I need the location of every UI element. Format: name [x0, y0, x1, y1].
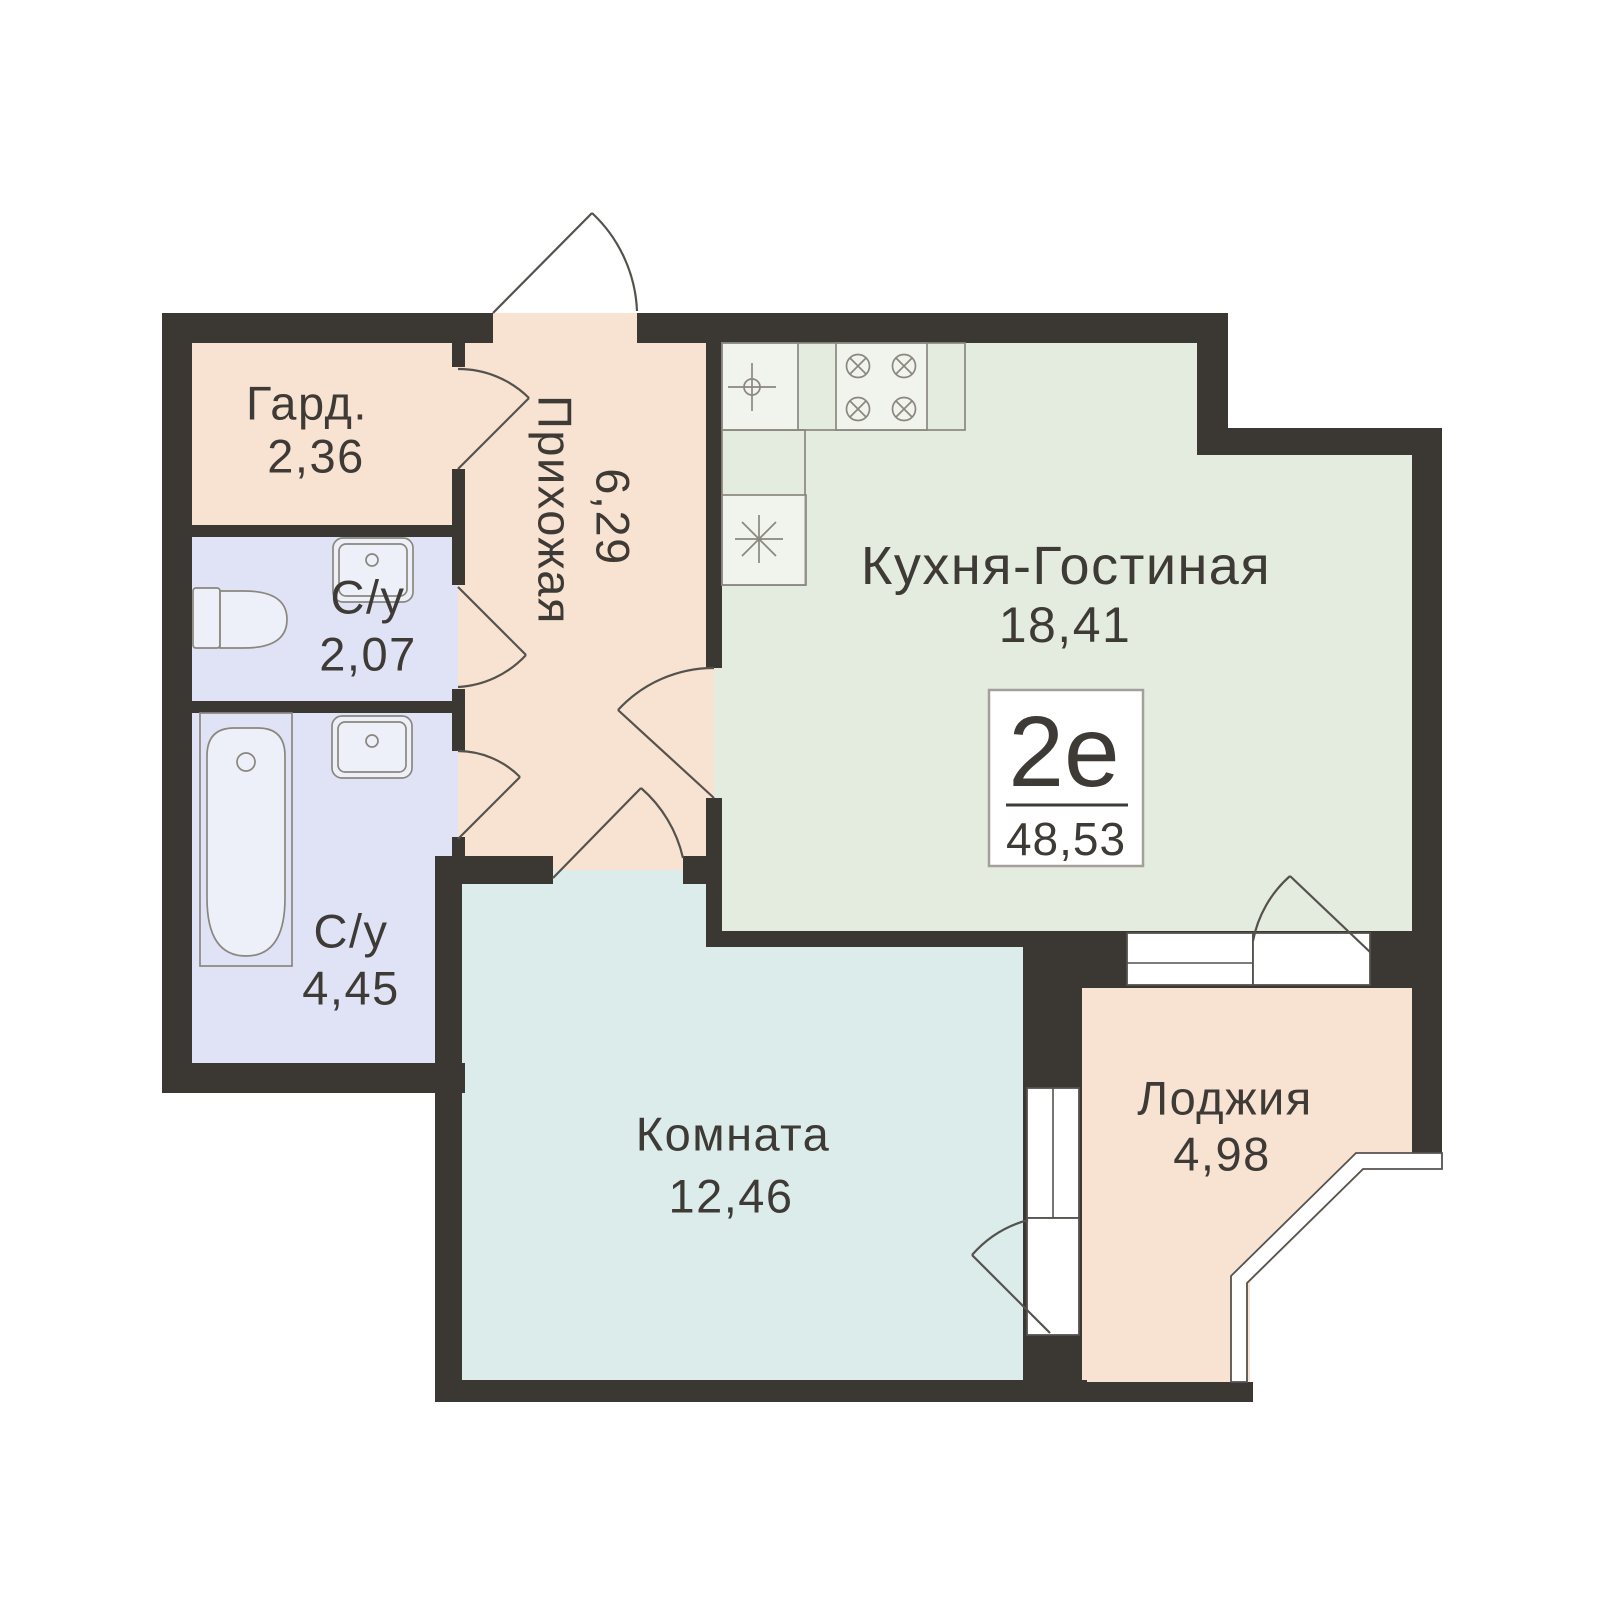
wall-hall-partition-stub-bottom: [452, 837, 465, 858]
fridge-asterisk: [735, 515, 783, 563]
wardrobe-area: 2,36: [267, 430, 364, 483]
wall-room-bottom: [435, 1380, 1087, 1402]
bathroom-small-label: С/у: [331, 571, 406, 624]
wall-wardrobe-bath-divider: [192, 525, 465, 537]
room-area: 12,46: [668, 1170, 793, 1223]
wall-hall-kitchen-upper: [706, 343, 722, 668]
fridge-icon: [722, 495, 806, 585]
bathroom-large-label: С/у: [314, 905, 389, 958]
bathroom-large-area: 4,45: [302, 962, 399, 1015]
wall-hall-partition-mid: [452, 469, 465, 585]
wall-right: [1412, 428, 1442, 1155]
wall-room-left: [435, 856, 462, 1402]
wall-kitchen-step-horizontal: [1197, 428, 1442, 455]
hallway-area: 6,29: [587, 468, 640, 565]
bathtub-icon: [200, 713, 292, 966]
entrance-door-arc: [493, 213, 637, 313]
floorplan-canvas: Гард. 2,36 С/у 2,07 С/у 4,45 Прихожая 6,…: [0, 0, 1620, 1620]
kitchen-loggia-window: [1127, 933, 1253, 985]
toilet-bowl: [220, 591, 287, 648]
fridge-body: [722, 495, 806, 585]
wall-loggia-bottom: [1082, 1382, 1253, 1402]
wall-top-left: [162, 313, 493, 343]
floorplan-page: Гард. 2,36 С/у 2,07 С/у 4,45 Прихожая 6,…: [0, 0, 1620, 1620]
wall-bath-bath-divider: [192, 701, 465, 713]
wall-hall-partition-low: [452, 689, 465, 751]
kitchen-living-area: 18,41: [999, 597, 1132, 653]
toilet-icon: [193, 588, 287, 648]
wall-left: [162, 313, 192, 1093]
sink-large-icon: [332, 716, 412, 778]
wall-kitchen-room-partition: [706, 931, 1035, 947]
badge-total-area: 48,53: [1006, 813, 1126, 865]
bathroom-small-area: 2,07: [319, 628, 416, 681]
loggia-label: Лоджия: [1137, 1072, 1313, 1125]
wall-hall-partition-stub-top: [452, 341, 465, 367]
room-fills: [192, 313, 1412, 1392]
badge-type-label: 2е: [1008, 696, 1119, 808]
kitchen-balcony-door-opening: [1253, 933, 1370, 985]
stove-icon: [836, 343, 927, 430]
wardrobe-label: Гард.: [246, 377, 368, 430]
room-label: Комната: [636, 1108, 831, 1161]
wall-bath-bottom: [162, 1063, 465, 1093]
loggia-area: 4,98: [1173, 1128, 1270, 1181]
kitchen-living-label: Кухня-Гостиная: [861, 536, 1271, 596]
wall-top-right: [637, 313, 1228, 343]
hallway-label: Прихожая: [529, 395, 582, 625]
toilet-tank: [193, 588, 220, 648]
wall-room-top-jamb: [683, 856, 722, 884]
bathtub-basin: [207, 728, 285, 956]
hallway-floor: [458, 313, 714, 884]
apartment-badge: 2е 48,53: [989, 690, 1143, 866]
kitchen-sink-icon: [722, 343, 798, 430]
